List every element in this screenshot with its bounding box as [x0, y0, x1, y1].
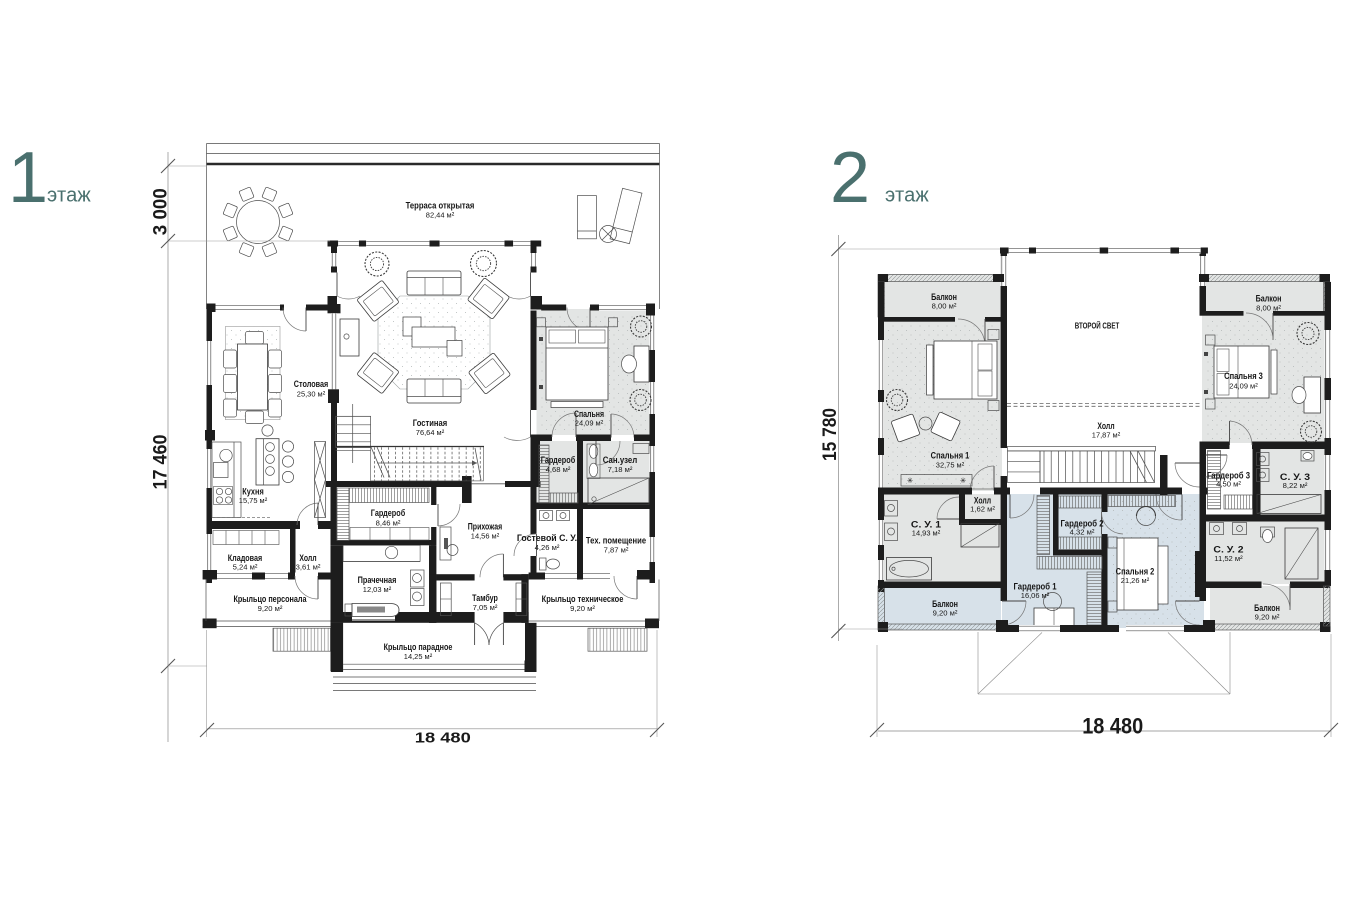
svg-text:Балкон: Балкон	[932, 599, 958, 609]
svg-text:Балкон: Балкон	[1256, 294, 1282, 304]
svg-text:9,20 м²: 9,20 м²	[258, 604, 283, 613]
svg-text:Кухня: Кухня	[242, 487, 264, 497]
svg-text:7,87 м²: 7,87 м²	[604, 546, 629, 555]
svg-text:3 000: 3 000	[150, 188, 172, 235]
svg-text:✳: ✳	[907, 476, 914, 485]
svg-text:1: 1	[8, 138, 48, 218]
svg-text:18 480: 18 480	[1082, 714, 1143, 739]
svg-text:8,00 м²: 8,00 м²	[1256, 304, 1281, 313]
svg-text:21,26 м²: 21,26 м²	[1121, 576, 1150, 585]
svg-text:Спальня 3: Спальня 3	[1224, 371, 1263, 381]
svg-text:9,20 м²: 9,20 м²	[933, 608, 958, 617]
svg-text:8,46 м²: 8,46 м²	[376, 519, 401, 528]
svg-text:8,00 м²: 8,00 м²	[932, 302, 957, 311]
svg-text:18 480: 18 480	[415, 730, 471, 747]
svg-text:Гостиная: Гостиная	[413, 418, 447, 428]
svg-text:15,75 м²: 15,75 м²	[239, 496, 268, 505]
svg-text:1,62 м²: 1,62 м²	[970, 505, 995, 514]
svg-text:ВТОРОЙ СВЕТ: ВТОРОЙ СВЕТ	[1075, 320, 1120, 331]
svg-text:9,20 м²: 9,20 м²	[570, 604, 595, 613]
svg-text:3,61 м²: 3,61 м²	[296, 562, 321, 571]
svg-text:16,06 м²: 16,06 м²	[1021, 591, 1050, 600]
svg-text:Крыльцо техническое: Крыльцо техническое	[542, 594, 624, 604]
svg-text:Гостевой С. У.: Гостевой С. У.	[517, 533, 577, 543]
svg-text:7,05 м²: 7,05 м²	[473, 603, 498, 612]
svg-text:Балкон: Балкон	[931, 292, 957, 302]
svg-text:Тех. помещение: Тех. помещение	[586, 536, 646, 546]
svg-text:Тамбур: Тамбур	[472, 593, 498, 603]
svg-text:Терраса открытая: Терраса открытая	[406, 201, 475, 211]
svg-text:Крыльцо персонала: Крыльцо персонала	[233, 594, 307, 604]
svg-text:15 780: 15 780	[819, 408, 841, 461]
svg-text:4,68 м²: 4,68 м²	[546, 465, 571, 474]
svg-text:4,26 м²: 4,26 м²	[535, 543, 560, 552]
svg-text:4,32 м²: 4,32 м²	[1070, 527, 1095, 536]
svg-text:Спальня 2: Спальня 2	[1116, 566, 1155, 576]
svg-text:Столовая: Столовая	[294, 379, 328, 389]
svg-text:14,93 м²: 14,93 м²	[912, 529, 941, 538]
svg-text:4,50 м²: 4,50 м²	[1216, 480, 1241, 489]
svg-text:Крыльцо парадное: Крыльцо парадное	[384, 642, 453, 652]
svg-text:Прихожая: Прихожая	[468, 522, 502, 532]
svg-text:24,09 м²: 24,09 м²	[1229, 381, 1258, 390]
svg-text:11,52 м²: 11,52 м²	[1214, 554, 1243, 563]
svg-text:Гардероб: Гардероб	[541, 455, 576, 465]
svg-text:7,18 м²: 7,18 м²	[608, 465, 633, 474]
svg-text:этаж: этаж	[47, 185, 91, 207]
svg-text:Спальня 1: Спальня 1	[931, 451, 970, 461]
svg-text:17 460: 17 460	[150, 434, 172, 489]
svg-text:24,09 м²: 24,09 м²	[575, 418, 604, 427]
svg-text:82,44 м²: 82,44 м²	[426, 210, 455, 219]
svg-text:25,30 м²: 25,30 м²	[297, 389, 326, 398]
svg-text:Гардероб 1: Гардероб 1	[1014, 582, 1057, 592]
svg-text:9,20 м²: 9,20 м²	[1255, 612, 1280, 621]
svg-text:✳: ✳	[960, 476, 967, 485]
svg-text:8,22 м²: 8,22 м²	[1283, 481, 1308, 490]
svg-text:Прачечная: Прачечная	[358, 575, 397, 585]
svg-text:этаж: этаж	[885, 185, 929, 207]
svg-text:14,56 м²: 14,56 м²	[471, 531, 500, 540]
svg-text:2: 2	[830, 138, 870, 218]
svg-text:Сан.узел: Сан.узел	[603, 455, 638, 465]
svg-text:14,25 м²: 14,25 м²	[404, 652, 433, 661]
svg-text:12,03 м²: 12,03 м²	[363, 585, 392, 594]
svg-text:32,75 м²: 32,75 м²	[936, 461, 965, 470]
svg-text:Гардероб: Гардероб	[371, 508, 406, 518]
svg-text:5,24 м²: 5,24 м²	[233, 562, 258, 571]
svg-text:17,87 м²: 17,87 м²	[1092, 431, 1121, 440]
svg-text:76,64 м²: 76,64 м²	[416, 428, 445, 437]
